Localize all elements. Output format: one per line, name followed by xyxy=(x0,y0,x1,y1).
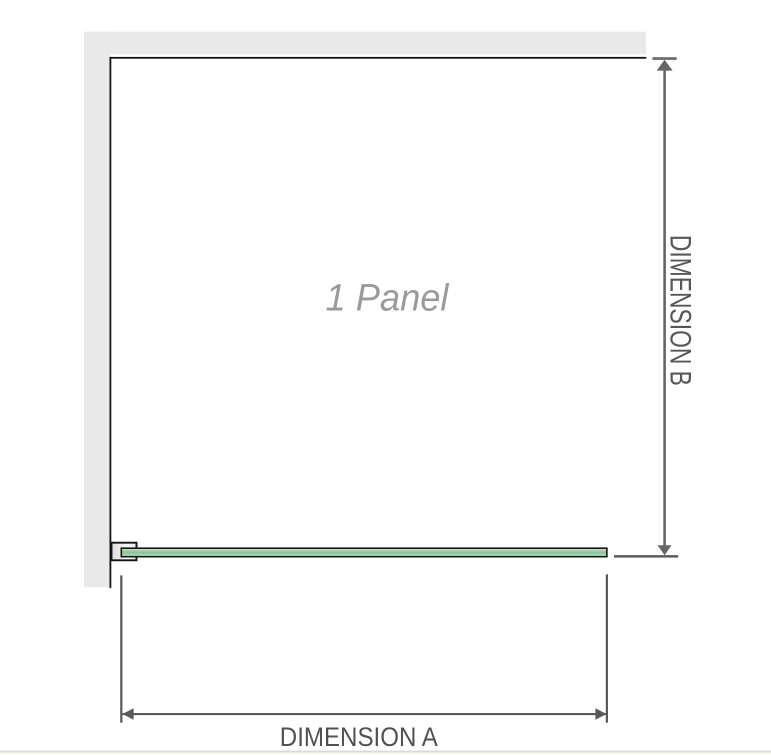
svg-text:DIMENSION A: DIMENSION A xyxy=(280,722,438,752)
svg-text:DIMENSION B: DIMENSION B xyxy=(664,235,697,386)
svg-text:1 Panel: 1 Panel xyxy=(326,278,450,320)
